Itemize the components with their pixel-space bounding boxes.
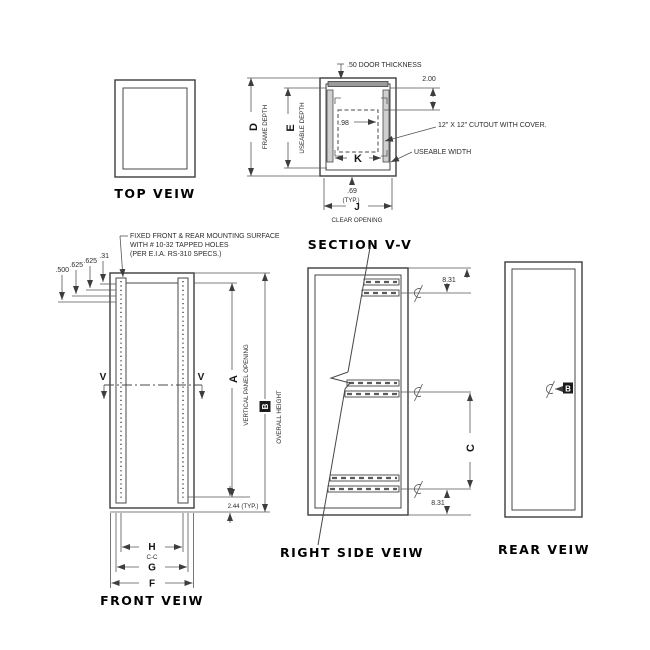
right-side-rails <box>328 279 399 492</box>
top-view-inner-outline <box>123 88 187 169</box>
rear-view-title: REAR VEIW <box>498 542 590 557</box>
centerline-icon <box>414 285 422 302</box>
front-view: FIXED FRONT & REAR MOUNTING SURFACE WITH… <box>55 233 283 608</box>
mounting-note-line3: (PER E.I.A. RS-310 SPECS.) <box>130 251 221 258</box>
dim-69-label: .69 <box>347 188 357 195</box>
section-cutout-dashed <box>338 110 378 152</box>
section-vv-view: .98 K D FRAME DEPTH E USEABLE DEPTH .50 … <box>247 62 547 252</box>
mounting-note-line2: WITH # 10-32 TAPPED HOLES <box>130 242 229 249</box>
useable-depth-label: USEABLE DEPTH <box>299 102 306 153</box>
front-left-offset-dims: .500 .625 .625 .31 <box>55 253 116 302</box>
dim-f-label: F <box>149 579 155 590</box>
dim-831-bottom-label: 8.31 <box>431 500 445 507</box>
top-view-outline <box>115 80 195 177</box>
dim-h-label: H <box>148 542 155 553</box>
section-right-rail <box>383 90 389 162</box>
dim-831-bottom: 8.31 <box>408 490 471 515</box>
useable-width-callout: USEABLE WIDTH <box>391 149 471 162</box>
right-side-view-title: RIGHT SIDE VEIW <box>280 545 424 560</box>
right-side-view: 8.31 8.31 C RIGHT SIDE VEIW <box>280 242 477 560</box>
front-outline <box>110 273 194 508</box>
frame-depth-label: FRAME DEPTH <box>262 105 269 149</box>
top-view: TOP VEIW <box>114 80 195 201</box>
dim-b-overall-height: B OVERALL HEIGHT <box>110 273 283 512</box>
rear-dim-b-label: B <box>565 385 571 394</box>
door-thickness-label: .50 DOOR THICKNESS <box>347 62 422 69</box>
section-cut-line: V V <box>100 372 205 399</box>
top-view-title: TOP VEIW <box>114 186 195 201</box>
dim-k-label: K <box>354 153 362 165</box>
section-v-left-label: V <box>100 372 107 383</box>
dim-200-label: 2.00 <box>422 76 436 83</box>
mounting-note-line1: FIXED FRONT & REAR MOUNTING SURFACE <box>130 233 280 240</box>
dim-625a-label: .625 <box>69 262 83 269</box>
dim-d-frame-depth: D FRAME DEPTH <box>247 78 320 176</box>
front-left-rail <box>116 278 126 503</box>
dim-98-label: .98 <box>339 120 349 127</box>
dim-31-label: .31 <box>99 253 109 260</box>
dim-g-label: G <box>148 563 156 574</box>
dim-a-vertical-panel-opening: A VERTICAL PANEL OPENING <box>188 283 250 497</box>
front-bottom-dims: H C-C G F <box>111 513 194 590</box>
dim-831-top-label: 8.31 <box>442 277 456 284</box>
drawing-canvas: TOP VEIW .98 K D FRAME DEPTH <box>0 0 650 650</box>
dim-625b-label: .625 <box>83 258 97 265</box>
vertical-panel-opening-label: VERTICAL PANEL OPENING <box>243 344 250 426</box>
dim-j-label: J <box>354 202 360 213</box>
centerline-icon <box>414 384 422 401</box>
mounting-note-callout: FIXED FRONT & REAR MOUNTING SURFACE WITH… <box>120 233 280 277</box>
dim-c-label: C <box>465 444 477 452</box>
engineering-drawing-page: TOP VEIW .98 K D FRAME DEPTH <box>0 0 650 650</box>
dim-h-cc-label: C-C <box>147 554 159 561</box>
cutout-note-label: 12" X 12" CUTOUT WITH COVER. <box>438 122 547 129</box>
front-right-rail <box>178 278 188 503</box>
cutout-note-callout: 12" X 12" CUTOUT WITH COVER. <box>385 122 547 141</box>
rear-centerline-callout: B <box>546 381 573 398</box>
dim-j-clear-opening: .69 (TYP.) J CLEAR OPENING <box>324 177 392 224</box>
dim-d-label: D <box>248 123 260 131</box>
useable-width-label: USEABLE WIDTH <box>414 149 471 156</box>
dim-a-label: A <box>228 375 240 383</box>
section-left-rail <box>327 90 333 162</box>
dim-244-label: 2.44 (TYP.) <box>228 503 259 510</box>
rear-view: B REAR VEIW <box>498 262 590 557</box>
dim-200: 2.00 <box>384 76 440 110</box>
clear-opening-label: CLEAR OPENING <box>332 217 383 224</box>
centerline-icon <box>414 481 422 498</box>
overall-height-label: OVERALL HEIGHT <box>276 390 283 444</box>
dim-c: C <box>465 393 477 488</box>
section-door-panel <box>328 82 388 87</box>
section-vv-title: SECTION V-V <box>308 237 413 252</box>
centerline-icon <box>546 381 554 398</box>
door-thickness-callout: .50 DOOR THICKNESS <box>337 62 422 79</box>
dim-e-label: E <box>285 124 297 131</box>
dim-500-label: .500 <box>55 267 69 274</box>
dim-b-label: B <box>261 403 270 409</box>
front-view-title: FRONT VEIW <box>100 593 204 608</box>
section-corner-brackets <box>335 98 387 156</box>
section-v-right-label: V <box>198 372 205 383</box>
